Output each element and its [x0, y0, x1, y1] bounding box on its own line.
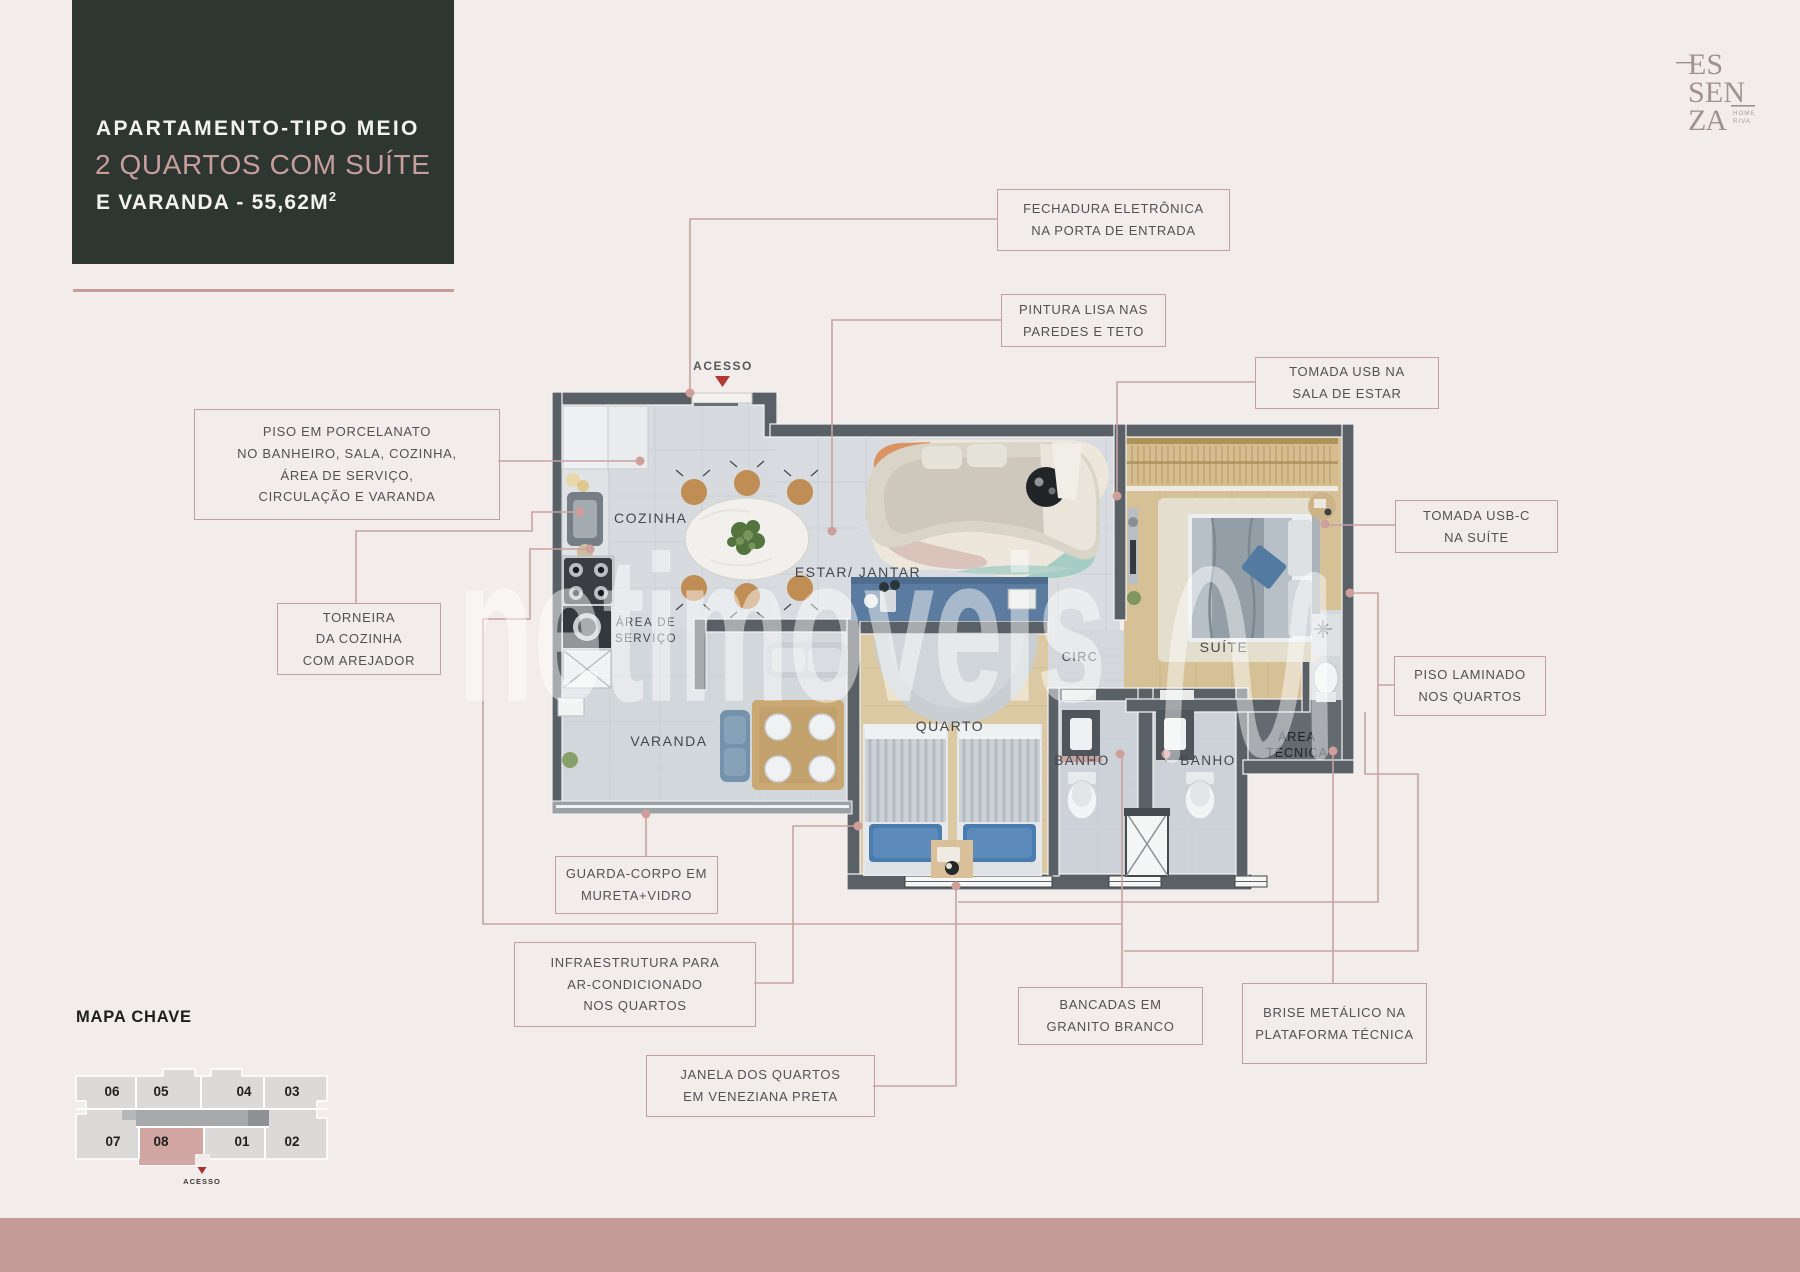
svg-text:ACESSO: ACESSO — [183, 1177, 221, 1186]
svg-text:05: 05 — [153, 1084, 169, 1099]
svg-text:ACESSO: ACESSO — [693, 359, 753, 373]
svg-text:BANHO: BANHO — [1054, 753, 1110, 768]
svg-text:BANHO: BANHO — [1180, 753, 1236, 768]
svg-text:04: 04 — [236, 1084, 252, 1099]
svg-text:07: 07 — [105, 1134, 120, 1149]
svg-text:03: 03 — [284, 1084, 300, 1099]
svg-text:netimoveis: netimoveis — [458, 514, 1106, 744]
svg-text:02: 02 — [284, 1134, 299, 1149]
svg-text:01: 01 — [234, 1134, 250, 1149]
svg-text:06: 06 — [104, 1084, 120, 1099]
svg-text:08: 08 — [153, 1134, 169, 1149]
